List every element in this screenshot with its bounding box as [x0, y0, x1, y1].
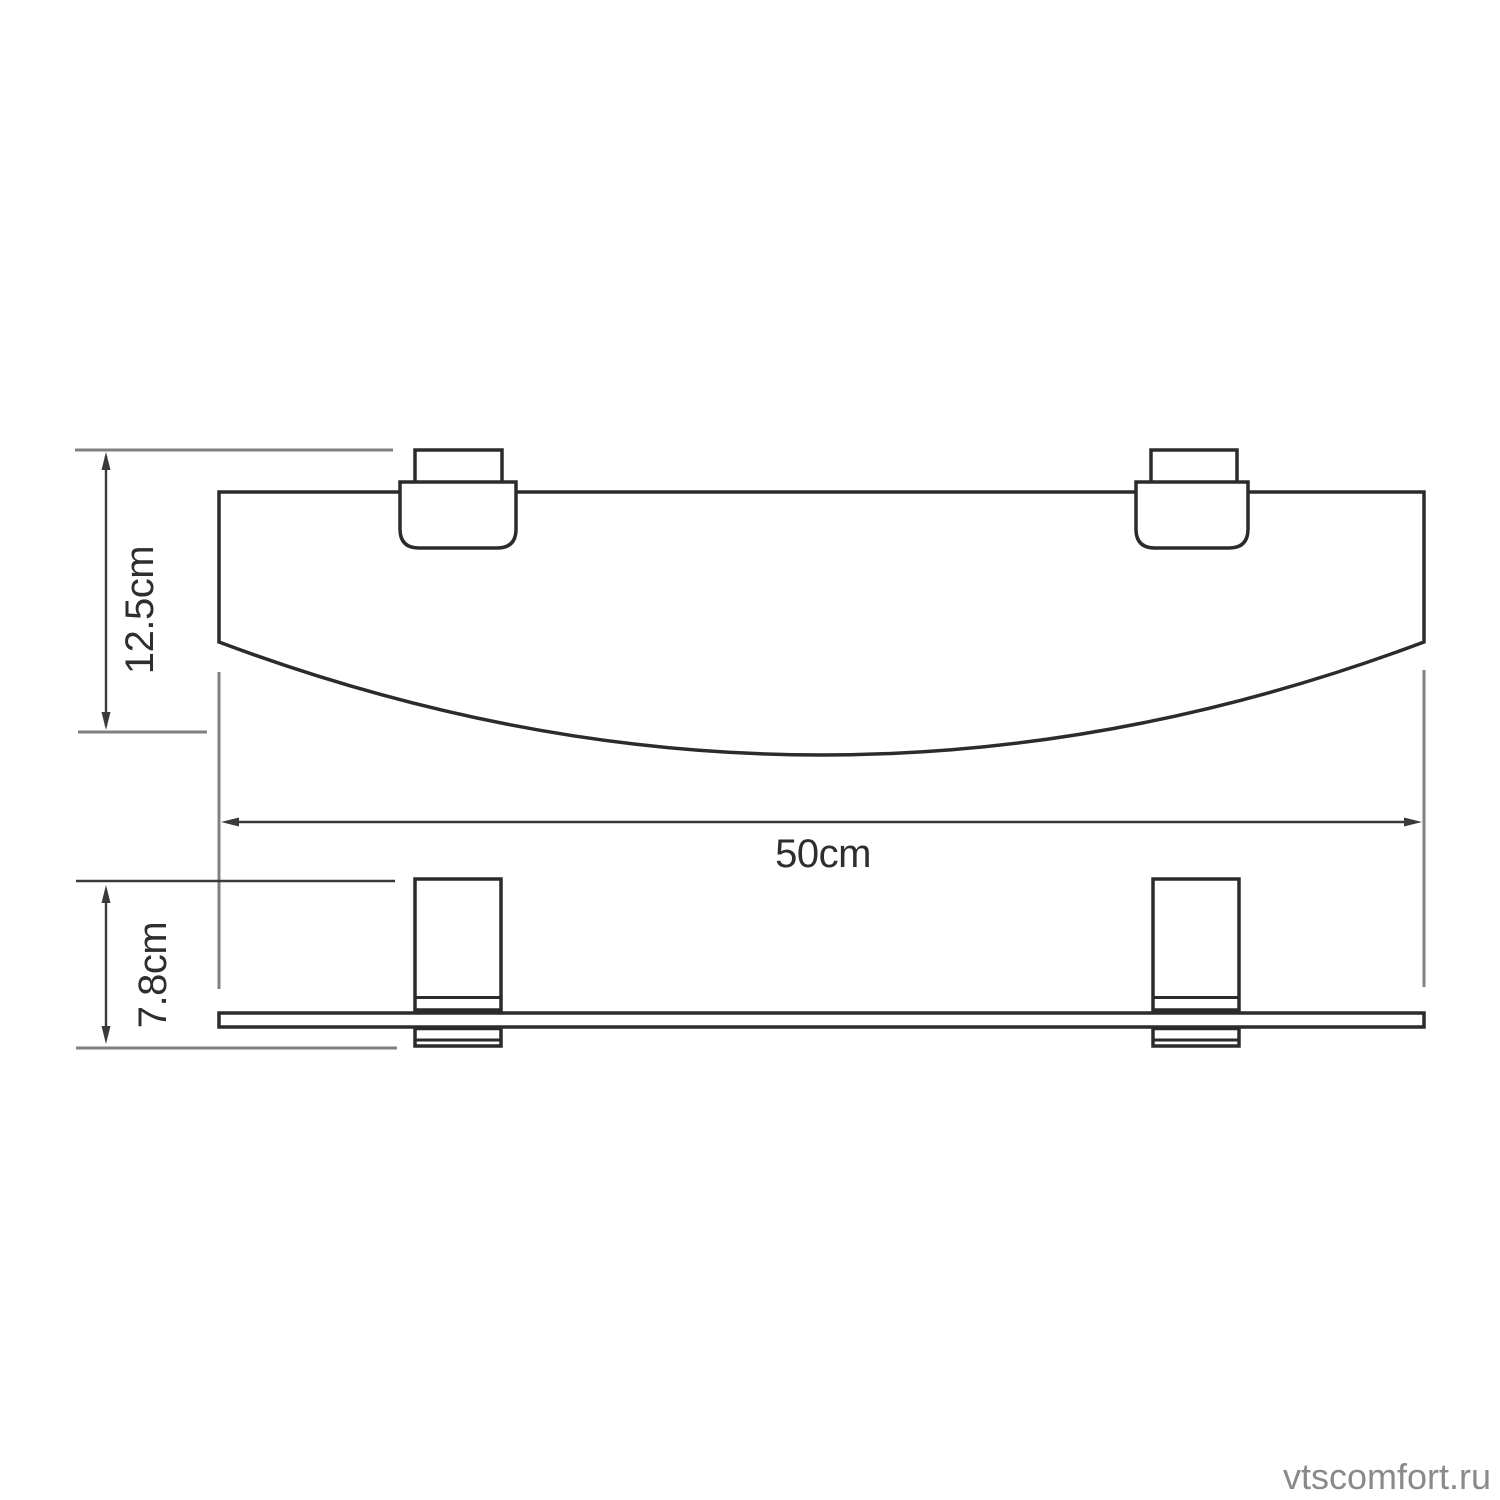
- height-arrow-up-icon: [102, 885, 111, 903]
- watermark: vtscomfort.ru: [1283, 1456, 1491, 1498]
- technical-drawing-canvas: 12.5cm 50cm 7.8cm vtscomfort.ru: [0, 0, 1500, 1500]
- left-bracket-post: [415, 879, 501, 1010]
- depth-dimension-label: 12.5cm: [118, 546, 162, 674]
- height-arrow-down-icon: [102, 1026, 111, 1044]
- width-dimension-label: 50cm: [775, 832, 871, 876]
- height-dimension-label: 7.8cm: [131, 922, 175, 1028]
- shelf-diagram: 12.5cm 50cm 7.8cm: [0, 0, 1500, 1500]
- top-view: [219, 450, 1424, 755]
- right-bracket-body: [1136, 482, 1248, 548]
- depth-arrow-down-icon: [102, 712, 111, 730]
- right-bracket-post: [1153, 879, 1239, 1010]
- front-view: [219, 879, 1424, 1046]
- right-bracket-foot: [1153, 1029, 1239, 1047]
- left-bracket-foot: [415, 1029, 501, 1047]
- left-bracket-wall-tab: [415, 450, 502, 483]
- right-bracket-wall-tab: [1151, 450, 1237, 483]
- depth-arrow-up-icon: [102, 452, 111, 470]
- left-bracket-plan: [400, 450, 516, 548]
- width-arrow-right-icon: [1404, 818, 1422, 827]
- left-bracket-body: [400, 482, 516, 548]
- width-arrow-left-icon: [221, 818, 239, 827]
- right-bracket-plan: [1136, 450, 1248, 548]
- glass-shelf-front: [219, 1013, 1424, 1027]
